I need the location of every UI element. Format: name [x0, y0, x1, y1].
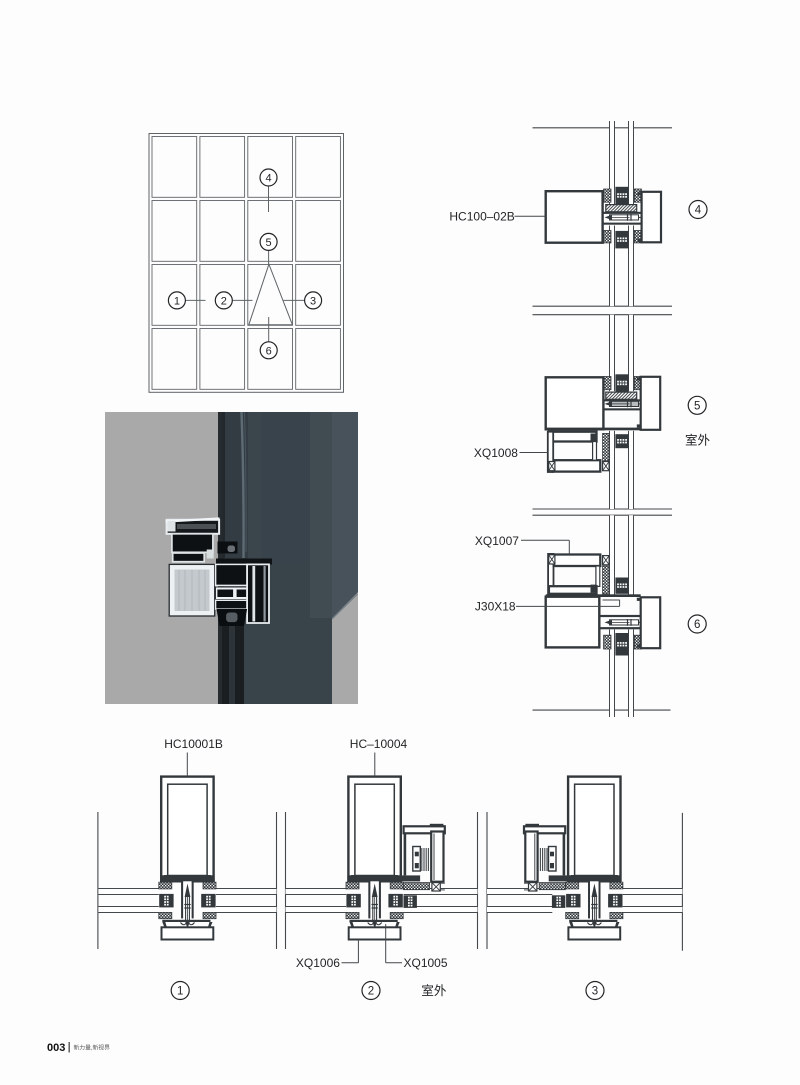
svg-text:2: 2: [368, 986, 374, 998]
svg-text:J30X18: J30X18: [475, 599, 516, 613]
svg-text:003: 003: [47, 1042, 65, 1054]
svg-text:HC100–02B: HC100–02B: [449, 209, 514, 223]
svg-text:XQ1006: XQ1006: [296, 956, 340, 970]
svg-text:室外: 室外: [421, 983, 447, 998]
svg-text:XQ1007: XQ1007: [475, 534, 519, 548]
svg-text:3: 3: [310, 295, 316, 307]
svg-text:5: 5: [694, 400, 700, 412]
svg-text:6: 6: [694, 619, 700, 631]
svg-text:6: 6: [266, 345, 272, 357]
svg-text:1: 1: [174, 295, 180, 307]
svg-text:5: 5: [266, 237, 272, 249]
svg-text:1: 1: [177, 986, 183, 998]
svg-text:4: 4: [265, 172, 271, 184]
svg-text:室外: 室外: [685, 433, 711, 448]
svg-text:HC–10004: HC–10004: [350, 737, 408, 751]
svg-text:3: 3: [592, 986, 598, 998]
svg-text:4: 4: [695, 205, 702, 217]
svg-text:XQ1005: XQ1005: [404, 956, 448, 970]
svg-text:新力量,新视界: 新力量,新视界: [74, 1044, 111, 1052]
svg-text:HC10001B: HC10001B: [164, 737, 223, 751]
svg-text:2: 2: [221, 295, 227, 307]
svg-text:XQ1008: XQ1008: [474, 446, 518, 460]
